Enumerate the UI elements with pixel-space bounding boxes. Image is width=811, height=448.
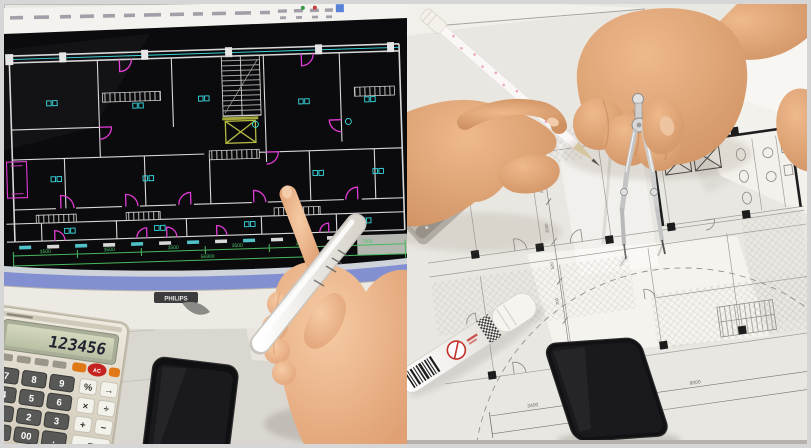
philips-logo-text: PHILIPS xyxy=(164,297,187,303)
left-photo-cad-monitor: 3500 3500 3500 3500 3500 7000 56900 PHIL… xyxy=(4,4,407,444)
svg-text:AC: AC xyxy=(93,368,102,375)
dimension-label: 7000 xyxy=(362,239,374,245)
cad-stairs xyxy=(221,55,261,116)
dimension-label: 3500 xyxy=(232,243,244,249)
dimension-total-label: 56900 xyxy=(201,254,215,260)
calc-key: → xyxy=(103,385,114,397)
toolbar-blue-icon xyxy=(336,4,344,12)
dimension-label: 3500 xyxy=(168,245,180,251)
dimension-label: 3500 xyxy=(104,247,116,253)
dimension-label: 200 xyxy=(554,297,560,305)
philips-logo: PHILIPS xyxy=(154,292,198,303)
right-photo-blueprint-work: 2000 2000 520 200 3400 9000 30700 0 0 1 … xyxy=(407,4,807,444)
photo-collage: 3500 3500 3500 3500 3500 7000 56900 PHIL… xyxy=(0,0,811,448)
calc-key: 00 xyxy=(20,430,32,442)
calc-key-orange xyxy=(108,367,120,377)
calculator: 123456 AC 7 8 9 4 5 xyxy=(4,304,131,444)
dimension-label: 520 xyxy=(549,261,555,269)
smartphone xyxy=(141,356,240,444)
calc-key: = xyxy=(87,440,94,444)
dimension-label: 3500 xyxy=(40,249,52,255)
fingernail xyxy=(282,186,292,199)
table-shadow-strip xyxy=(407,440,807,444)
